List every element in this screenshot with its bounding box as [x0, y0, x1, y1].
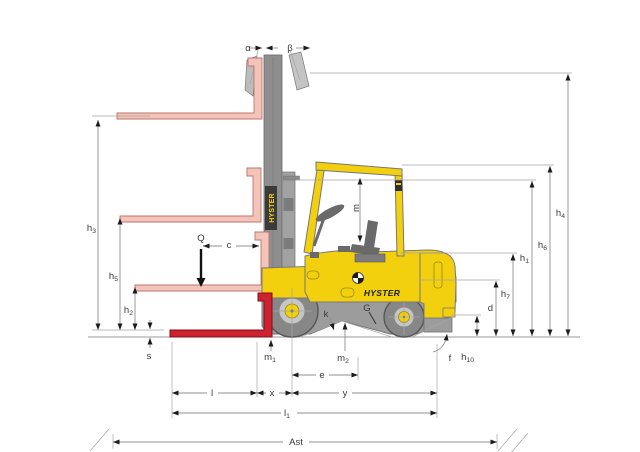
carriage-top-plate: [284, 176, 300, 180]
label-k: k: [324, 309, 329, 320]
label-alpha: α: [245, 43, 251, 54]
carriage-block-1: [284, 198, 294, 211]
label-l: l: [211, 388, 213, 399]
control-lever-2: [310, 252, 319, 258]
label-s: s: [147, 351, 152, 362]
label-m-headroom: m: [351, 204, 362, 212]
rear-bumper: [424, 318, 452, 332]
mast-brand-logo: HYSTER: [269, 193, 276, 223]
label-load-center-c: c: [227, 240, 232, 251]
label-y: y: [343, 388, 348, 399]
label-load-q: Q: [197, 233, 204, 244]
label-beta: β: [287, 43, 293, 54]
label-g: G: [363, 303, 370, 314]
label-d: d: [488, 303, 493, 314]
carriage-block-2: [284, 238, 294, 249]
rear-wheel: [384, 297, 424, 337]
diagram-canvas: HYSTER: [0, 0, 640, 452]
tow-pin: [443, 308, 455, 317]
label-e: e: [319, 370, 324, 381]
control-lever-1: [338, 246, 350, 252]
center-of-gravity-symbol: [353, 273, 364, 284]
forklift-dimension-diagram: HYSTER: [0, 0, 640, 452]
label-x: x: [270, 388, 275, 399]
side-brand-logo: HYSTER: [364, 288, 401, 298]
guard-leg-sticker-mark: [396, 183, 401, 185]
label-f: f: [449, 353, 452, 364]
seat-base: [355, 254, 385, 262]
guard-leg-sticker: [395, 180, 402, 191]
label-ast: Ast: [289, 437, 303, 448]
